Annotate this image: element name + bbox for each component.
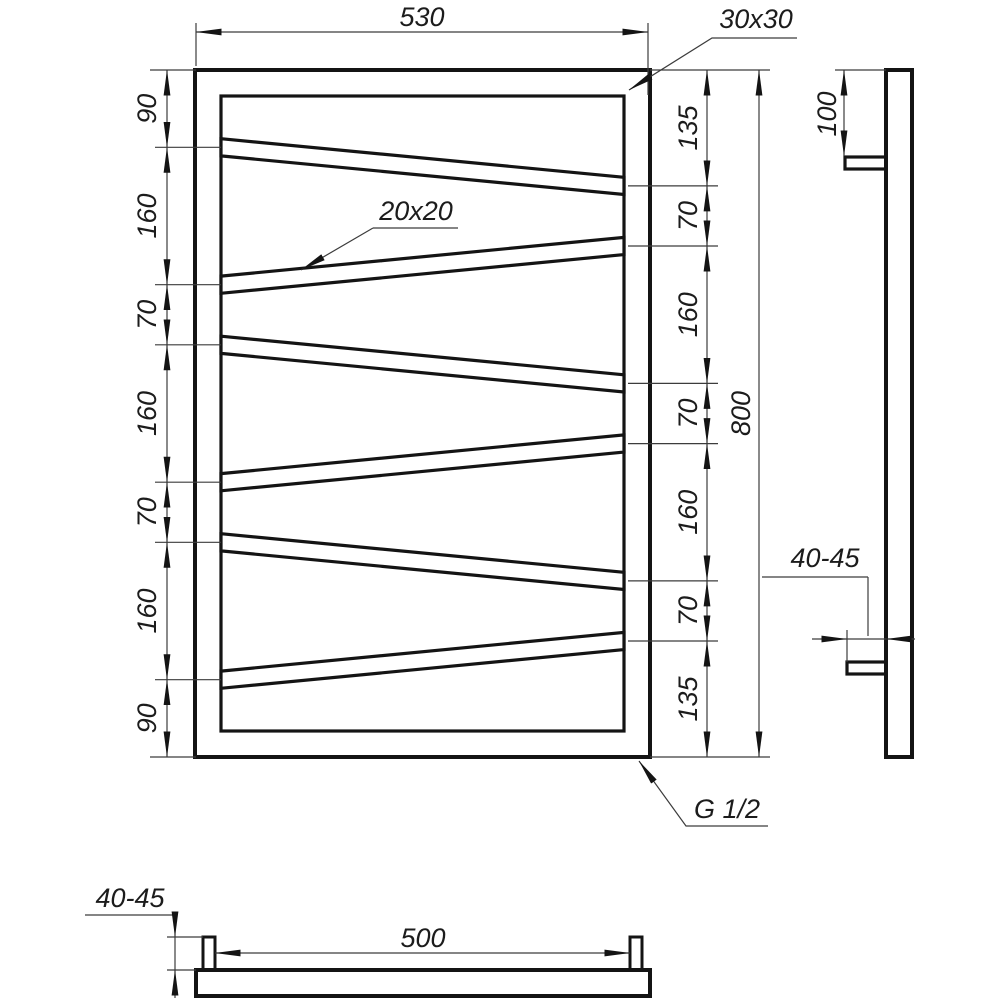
dim-bracket-offset: 100 [812,70,886,156]
right-dim-label-1: 135 [673,104,703,150]
side-view: 100 40-45 [762,70,915,757]
connector-left [203,937,215,970]
frame-inner [221,96,624,731]
dim-connector-spacing: 500 [215,923,630,953]
left-dim-label-3: 70 [132,300,162,330]
bottom-body [196,970,650,996]
bracket-offset-label: 100 [812,91,842,136]
callout-frame-profile: 30x30 [629,4,797,90]
right-dim-label-7: 135 [673,675,703,721]
left-dim-label-4: 160 [132,391,162,436]
left-dim-label-5: 70 [132,497,162,527]
width-dimension-label: 530 [399,2,444,32]
right-dim-label-2: 70 [673,201,703,231]
dim-wall-clearance-side: 40-45 [762,543,915,662]
zigzag-bar-3 [221,336,624,392]
dim-width: 530 [196,2,648,95]
zigzag-bar-2 [221,237,624,293]
bar-profile-label: 20x20 [378,196,453,226]
right-dim-label-3: 160 [673,292,703,337]
height-dimension-label: 800 [726,391,756,436]
front-view: 530 30x30 20x20 G 1/2 [132,2,797,826]
left-dim-label-1: 90 [132,94,162,124]
wall-bracket-top [845,157,886,169]
zigzag-bar-5 [221,534,624,590]
side-tube [886,70,912,757]
wall-clearance-side-label: 40-45 [790,543,860,573]
left-dim-label-2: 160 [132,193,162,238]
callout-thread: G 1/2 [639,761,768,826]
bottom-view: 500 40-45 [85,883,650,998]
thread-label: G 1/2 [694,794,760,824]
left-dim-label-7: 90 [132,703,162,733]
connector-right [630,937,642,970]
technical-drawing: 530 30x30 20x20 G 1/2 [0,0,1000,1000]
zigzag-bar-6 [221,632,624,688]
frame-profile-label: 30x30 [719,4,793,34]
right-dim-label-6: 70 [673,596,703,626]
zigzag-bar-4 [221,435,624,491]
connector-spacing-label: 500 [400,923,445,953]
wall-bracket-bottom [847,662,886,674]
wall-clearance-bottom-label: 40-45 [95,883,165,913]
left-dim-label-6: 160 [132,588,162,633]
dim-wall-clearance-bottom: 40-45 [85,883,203,998]
left-dimension-chain: 90 160 70 160 70 160 90 [132,70,221,757]
dim-height: 800 [726,70,759,757]
zigzag-bar-1 [221,139,624,195]
right-dim-label-4: 70 [673,398,703,428]
right-dim-label-5: 160 [673,490,703,535]
